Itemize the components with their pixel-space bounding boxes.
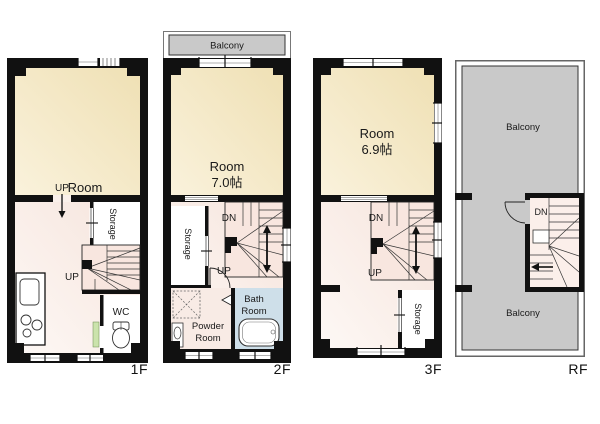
wall-stub <box>455 285 472 292</box>
stair-dn-label-2f: DN <box>222 213 236 224</box>
sink-icon <box>20 279 39 305</box>
wall <box>82 290 140 294</box>
pillar <box>15 68 26 76</box>
burner-icon <box>32 320 42 330</box>
room-name-2f: Room <box>210 159 245 174</box>
opening <box>100 326 105 348</box>
pillar <box>321 68 331 75</box>
floorplan-image: Room 7.0帖 UP Storage <box>0 0 600 424</box>
sliding-door-2f <box>185 196 218 201</box>
floor-label-2f: 2F <box>249 361 291 377</box>
powder-label-line2: Room <box>195 333 220 344</box>
pillar <box>127 68 140 76</box>
balcony-top-label-rf: Balcony <box>506 122 540 133</box>
pillar <box>424 68 434 75</box>
balcony-bottom-label-rf: Balcony <box>506 308 540 319</box>
burner-icon <box>21 315 31 325</box>
storage-label-2f: Storage <box>183 228 193 260</box>
storage-label-1f: Storage <box>108 208 118 240</box>
wall-stub <box>313 285 340 292</box>
wall-stub <box>455 193 472 200</box>
floorplan-3f: Room 6.9帖 <box>313 58 442 358</box>
stair-up-label-2f: UP <box>217 266 231 277</box>
stairs-1f <box>82 245 140 290</box>
toilet-icon <box>113 322 130 348</box>
wall <box>15 195 140 202</box>
bath-label-line1: Bath <box>244 294 264 305</box>
floor-label-3f: 3F <box>400 361 442 377</box>
floorplan-1f: Room 7.0帖 UP Storage <box>7 58 148 363</box>
room-name-3f: Room <box>360 126 395 141</box>
powder-label-line1: Powder <box>192 321 224 332</box>
pillar <box>274 341 283 350</box>
pillar <box>15 343 24 353</box>
pillar <box>171 341 180 350</box>
entry-up-label-1f: UP <box>55 183 69 194</box>
bathtub-icon <box>239 319 279 346</box>
kitchen-counter-1f <box>16 273 45 345</box>
burner-icon <box>23 329 31 337</box>
room-1f <box>15 68 140 195</box>
wall <box>171 285 211 289</box>
room-name-1f: Room <box>68 180 103 195</box>
pillar <box>425 339 434 348</box>
floorplan-rf: Balcony Balcony DN <box>455 60 585 357</box>
balcony-label-2f: Balcony <box>210 41 244 52</box>
stair-dn-label-3f: DN <box>369 213 383 224</box>
sliding-door-3f <box>341 196 387 201</box>
room-size-2f: 7.0帖 <box>211 175 242 190</box>
entry-door-green-1f <box>93 322 99 347</box>
pillar <box>171 68 181 75</box>
floor-label-1f: 1F <box>106 361 148 377</box>
stair-dn-label-rf: DN <box>535 207 548 217</box>
stair-up-label-1f: UP <box>65 272 79 283</box>
bath-label-line2: Room <box>241 306 266 317</box>
pillar <box>273 68 283 75</box>
stair-up-label-3f: UP <box>368 268 382 279</box>
pillar <box>131 343 140 353</box>
storage-label-3f: Storage <box>413 303 423 335</box>
room-size-3f: 6.9帖 <box>361 142 392 157</box>
wc-label-1f: WC <box>113 307 130 318</box>
floorplan-2f: Balcony Room 7.0帖 Storag <box>163 31 291 363</box>
pillar <box>321 339 330 348</box>
floor-label-rf: RF <box>546 361 588 377</box>
wall <box>231 288 235 363</box>
